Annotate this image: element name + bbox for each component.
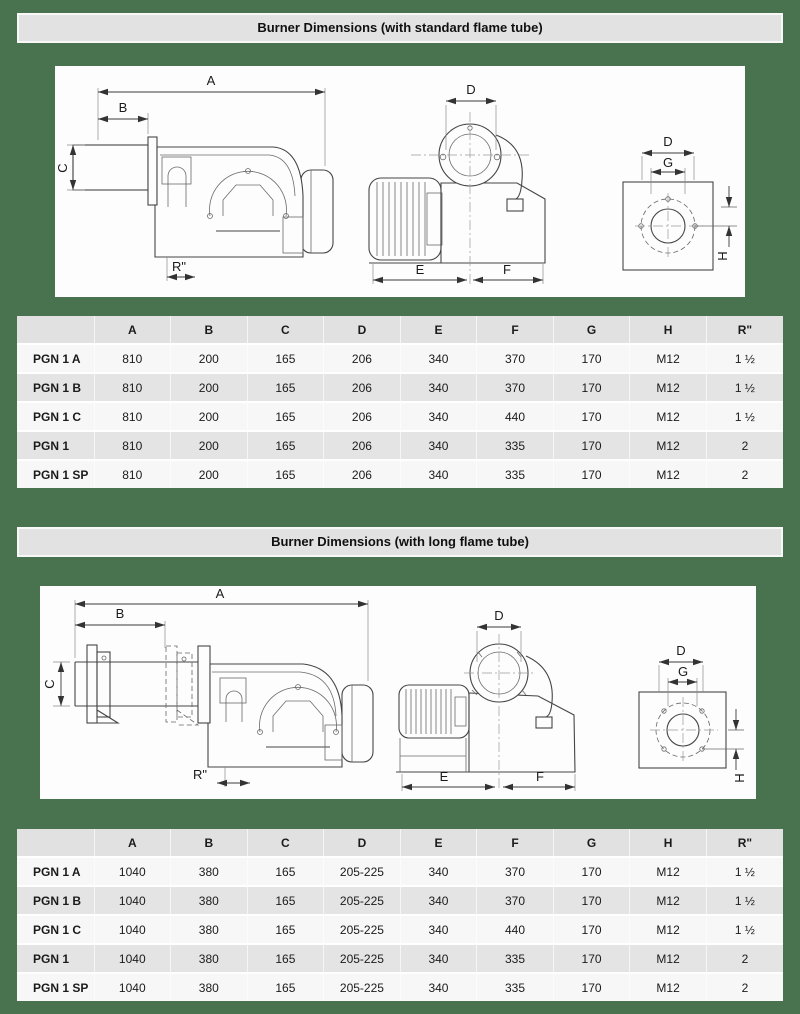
- cell: 206: [324, 402, 401, 431]
- row-label: PGN 1: [17, 944, 94, 973]
- datasheet-page: Burner Dimensions (with standard flame t…: [0, 0, 800, 1014]
- cell: 206: [324, 373, 401, 402]
- header-cell: B: [171, 829, 248, 857]
- cell: 440: [477, 915, 554, 944]
- table-row: PGN 1 810 200 165 206 340 335 170 M12 2: [17, 431, 783, 460]
- cell: 1 ½: [706, 915, 783, 944]
- cell: M12: [630, 373, 707, 402]
- cell: 205-225: [324, 915, 401, 944]
- cell: 170: [553, 344, 630, 373]
- table-row: PGN 1 A 1040 380 165 205-225 340 370 170…: [17, 857, 783, 886]
- header-cell: H: [630, 829, 707, 857]
- cell: 165: [247, 402, 324, 431]
- header-cell: C: [247, 829, 324, 857]
- table-header-row: A B C D E F G H R": [17, 829, 783, 857]
- cell: 205-225: [324, 857, 401, 886]
- table-row: PGN 1 SP 1040 380 165 205-225 340 335 17…: [17, 973, 783, 1001]
- dim-label-b: B: [119, 100, 128, 115]
- dim-label-c: C: [42, 679, 57, 688]
- cell: 165: [247, 915, 324, 944]
- cell: 335: [477, 973, 554, 1001]
- cell: 2: [706, 460, 783, 488]
- cell: 170: [553, 460, 630, 488]
- cell: 170: [553, 944, 630, 973]
- dim-label-a: A: [216, 586, 225, 601]
- cell: 206: [324, 431, 401, 460]
- cell: 340: [400, 431, 477, 460]
- cell: 170: [553, 973, 630, 1001]
- cell: 200: [171, 431, 248, 460]
- header-cell: F: [477, 829, 554, 857]
- table-row: PGN 1 C 810 200 165 206 340 440 170 M12 …: [17, 402, 783, 431]
- cell: 340: [400, 460, 477, 488]
- dim-label-f: F: [536, 769, 544, 784]
- cell: 380: [171, 886, 248, 915]
- cell: 200: [171, 460, 248, 488]
- cell: 165: [247, 344, 324, 373]
- cell: 1 ½: [706, 402, 783, 431]
- dim-label-g: G: [678, 664, 688, 679]
- cell: 1 ½: [706, 886, 783, 915]
- row-label: PGN 1 C: [17, 915, 94, 944]
- cell: 340: [400, 344, 477, 373]
- dim-label-g: G: [663, 155, 673, 170]
- cell: 340: [400, 915, 477, 944]
- header-cell: F: [477, 316, 554, 344]
- header-cell: B: [171, 316, 248, 344]
- table-row: PGN 1 SP 810 200 165 206 340 335 170 M12…: [17, 460, 783, 488]
- cell: 206: [324, 460, 401, 488]
- dim-label-h: H: [715, 251, 730, 260]
- cell: 205-225: [324, 886, 401, 915]
- header-cell: R": [706, 829, 783, 857]
- cell: M12: [630, 431, 707, 460]
- table-row: PGN 1 C 1040 380 165 205-225 340 440 170…: [17, 915, 783, 944]
- cell: 440: [477, 402, 554, 431]
- cell: 170: [553, 402, 630, 431]
- cell: 170: [553, 431, 630, 460]
- cell: 1040: [94, 973, 171, 1001]
- header-cell: [17, 316, 94, 344]
- cell: 335: [477, 431, 554, 460]
- dim-label-e: E: [416, 262, 425, 277]
- header-cell: D: [324, 316, 401, 344]
- row-label: PGN 1 SP: [17, 460, 94, 488]
- dim-label-b: B: [116, 606, 125, 621]
- section-title-text: Burner Dimensions (with standard flame t…: [257, 20, 542, 35]
- cell: 170: [553, 857, 630, 886]
- dim-label-f: F: [503, 262, 511, 277]
- cell: M12: [630, 402, 707, 431]
- cell: 340: [400, 944, 477, 973]
- dim-label-d2: D: [663, 134, 672, 149]
- cell: 200: [171, 344, 248, 373]
- row-label: PGN 1 SP: [17, 973, 94, 1001]
- dim-label-r: R": [193, 767, 207, 782]
- cell: 340: [400, 373, 477, 402]
- cell: 206: [324, 344, 401, 373]
- cell: 200: [171, 402, 248, 431]
- cell: 370: [477, 373, 554, 402]
- table-header-row: A B C D E F G H R": [17, 316, 783, 344]
- drawing-panel-long: A B: [40, 586, 756, 799]
- cell: 810: [94, 344, 171, 373]
- cell: M12: [630, 973, 707, 1001]
- cell: 1040: [94, 944, 171, 973]
- section-title-long: Burner Dimensions (with long flame tube): [17, 527, 783, 557]
- row-label: PGN 1 B: [17, 373, 94, 402]
- cell: 1 ½: [706, 344, 783, 373]
- cell: M12: [630, 344, 707, 373]
- cell: 165: [247, 460, 324, 488]
- table-row: PGN 1 A 810 200 165 206 340 370 170 M12 …: [17, 344, 783, 373]
- cell: 1 ½: [706, 857, 783, 886]
- dim-label-r: R": [172, 259, 186, 274]
- dim-label-d: D: [466, 82, 475, 97]
- cell: 380: [171, 973, 248, 1001]
- section-title-standard: Burner Dimensions (with standard flame t…: [17, 13, 783, 43]
- cell: 200: [171, 373, 248, 402]
- cell: 340: [400, 402, 477, 431]
- dim-label-c: C: [55, 163, 70, 172]
- dimensions-table-long: A B C D E F G H R" PGN 1 A 1040 380 165 …: [17, 829, 783, 1001]
- drawing-standard-flame-tube: A B C R": [55, 66, 745, 297]
- cell: 1 ½: [706, 373, 783, 402]
- cell: 165: [247, 973, 324, 1001]
- side-view: A B: [42, 586, 373, 787]
- header-cell: E: [400, 316, 477, 344]
- cell: M12: [630, 460, 707, 488]
- cell: 380: [171, 857, 248, 886]
- cell: 810: [94, 402, 171, 431]
- drawing-panel-standard: A B C R": [55, 66, 745, 297]
- cell: 370: [477, 857, 554, 886]
- cell: 165: [247, 944, 324, 973]
- row-label: PGN 1 B: [17, 886, 94, 915]
- cell: 205-225: [324, 944, 401, 973]
- drawing-long-flame-tube: A B: [40, 586, 756, 799]
- cell: 1040: [94, 857, 171, 886]
- cell: 1040: [94, 915, 171, 944]
- header-cell: R": [706, 316, 783, 344]
- header-cell: [17, 829, 94, 857]
- cell: 340: [400, 857, 477, 886]
- table-row: PGN 1 1040 380 165 205-225 340 335 170 M…: [17, 944, 783, 973]
- cell: 370: [477, 886, 554, 915]
- cell: 340: [400, 973, 477, 1001]
- section-title-text: Burner Dimensions (with long flame tube): [271, 534, 529, 549]
- cell: 2: [706, 431, 783, 460]
- dim-label-e: E: [440, 769, 449, 784]
- cell: M12: [630, 857, 707, 886]
- cell: 2: [706, 973, 783, 1001]
- header-cell: H: [630, 316, 707, 344]
- dim-label-a: A: [207, 73, 216, 88]
- cell: 810: [94, 373, 171, 402]
- row-label: PGN 1: [17, 431, 94, 460]
- cell: 2: [706, 944, 783, 973]
- flange-view: D G H: [639, 643, 747, 783]
- cell: 380: [171, 944, 248, 973]
- cell: M12: [630, 886, 707, 915]
- cell: 810: [94, 431, 171, 460]
- cell: 1040: [94, 886, 171, 915]
- cell: 170: [553, 886, 630, 915]
- front-view: D E F: [369, 82, 545, 284]
- table-row: PGN 1 B 1040 380 165 205-225 340 370 170…: [17, 886, 783, 915]
- dim-label-d2: D: [676, 643, 685, 658]
- table-row: PGN 1 B 810 200 165 206 340 370 170 M12 …: [17, 373, 783, 402]
- header-cell: G: [553, 316, 630, 344]
- cell: 335: [477, 460, 554, 488]
- header-cell: D: [324, 829, 401, 857]
- cell: 370: [477, 344, 554, 373]
- row-label: PGN 1 A: [17, 857, 94, 886]
- header-cell: C: [247, 316, 324, 344]
- header-cell: G: [553, 829, 630, 857]
- cell: 810: [94, 460, 171, 488]
- cell: M12: [630, 915, 707, 944]
- cell: 165: [247, 431, 324, 460]
- cell: 170: [553, 373, 630, 402]
- header-cell: A: [94, 829, 171, 857]
- cell: 205-225: [324, 973, 401, 1001]
- cell: 170: [553, 915, 630, 944]
- cell: M12: [630, 944, 707, 973]
- cell: 340: [400, 886, 477, 915]
- front-view: D E F: [396, 608, 575, 791]
- dim-label-h: H: [732, 773, 747, 782]
- cell: 380: [171, 915, 248, 944]
- flange-view: D G H: [623, 134, 737, 270]
- row-label: PGN 1 A: [17, 344, 94, 373]
- dim-label-d: D: [494, 608, 503, 623]
- header-cell: E: [400, 829, 477, 857]
- cell: 165: [247, 857, 324, 886]
- cell: 165: [247, 886, 324, 915]
- row-label: PGN 1 C: [17, 402, 94, 431]
- header-cell: A: [94, 316, 171, 344]
- dimensions-table-standard: A B C D E F G H R" PGN 1 A 810 200 165 2…: [17, 316, 783, 488]
- cell: 335: [477, 944, 554, 973]
- side-view: A B C R": [55, 73, 333, 281]
- cell: 165: [247, 373, 324, 402]
